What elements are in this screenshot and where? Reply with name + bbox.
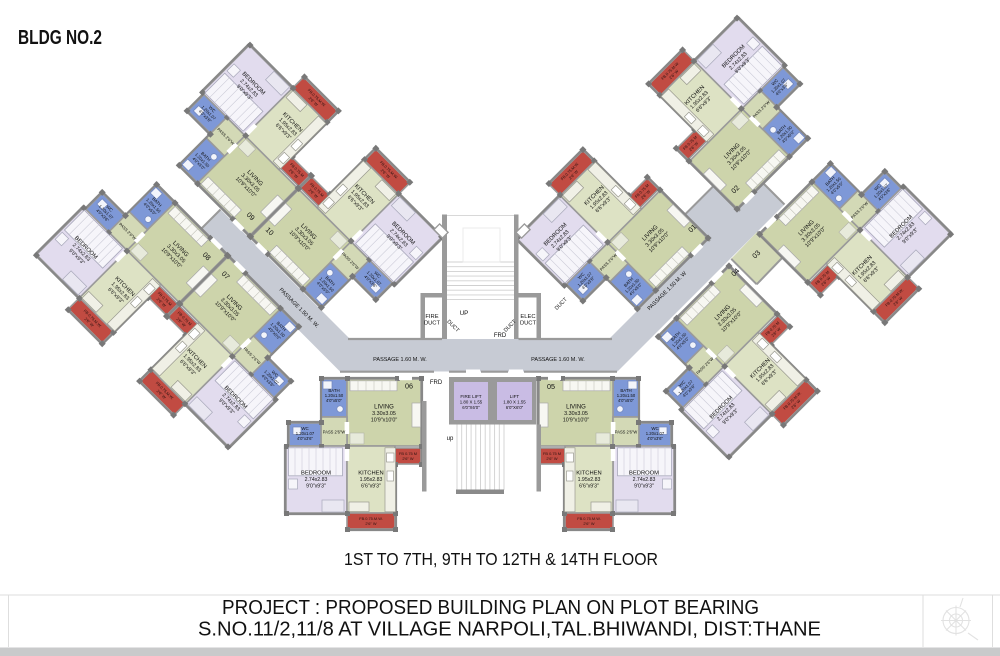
svg-text:FRD: FRD	[494, 333, 507, 339]
svg-text:2.74x2.83: 2.74x2.83	[305, 477, 328, 483]
svg-text:PASS 2'6"W: PASS 2'6"W	[323, 430, 346, 435]
svg-text:3.30x3.05: 3.30x3.05	[564, 411, 588, 417]
svg-text:FIRE: FIRE	[425, 314, 438, 320]
svg-text:9'0"x9'3": 9'0"x9'3"	[306, 483, 326, 489]
svg-text:4'0"x3'6": 4'0"x3'6"	[647, 436, 663, 441]
svg-text:10'9"x10'0": 10'9"x10'0"	[563, 417, 590, 423]
svg-text:1.95x2.83: 1.95x2.83	[578, 477, 601, 483]
svg-text:KITCHEN: KITCHEN	[358, 471, 383, 477]
svg-text:06: 06	[405, 382, 413, 391]
svg-text:PROJECT : PROPOSED BUILDING PL: PROJECT : PROPOSED BUILDING PLAN ON PLOT…	[222, 596, 759, 619]
svg-text:9'0"x9'3": 9'0"x9'3"	[634, 483, 654, 489]
svg-text:DUCT: DUCT	[520, 321, 537, 327]
svg-text:6'0"X6'0": 6'0"X6'0"	[462, 405, 480, 410]
svg-text:6'6"x9'3": 6'6"x9'3"	[579, 483, 599, 489]
svg-text:LIFT: LIFT	[510, 394, 520, 399]
svg-text:BEDROOM: BEDROOM	[629, 471, 659, 477]
svg-text:1ST TO 7TH, 9TH TO 12TH & 14TH: 1ST TO 7TH, 9TH TO 12TH & 14TH FLOOR	[344, 549, 658, 569]
svg-text:PASS 2'6"W: PASS 2'6"W	[615, 430, 638, 435]
svg-text:LIVING: LIVING	[566, 405, 586, 411]
svg-text:2'6" W: 2'6" W	[365, 521, 377, 526]
svg-text:2.74x2.83: 2.74x2.83	[633, 477, 656, 483]
svg-text:PASSAGE 1.60 M. W.: PASSAGE 1.60 M. W.	[531, 357, 585, 363]
svg-text:4'0"x5'0": 4'0"x5'0"	[618, 398, 634, 403]
svg-text:1.80 X 1.55: 1.80 X 1.55	[460, 400, 483, 405]
svg-text:10'9"x10'0": 10'9"x10'0"	[371, 417, 398, 423]
svg-text:4'0"x3'6": 4'0"x3'6"	[297, 436, 313, 441]
svg-text:DUCT: DUCT	[424, 321, 441, 327]
svg-text:KITCHEN: KITCHEN	[576, 471, 601, 477]
svg-text:FRD: FRD	[430, 380, 443, 386]
svg-text:PASSAGE 1.60 M. W.: PASSAGE 1.60 M. W.	[373, 357, 427, 363]
svg-text:6'6"x9'3": 6'6"x9'3"	[361, 483, 381, 489]
svg-text:UP: UP	[460, 310, 469, 317]
svg-text:6'0"X6'0": 6'0"X6'0"	[506, 405, 524, 410]
svg-text:BEDROOM: BEDROOM	[301, 471, 331, 477]
svg-text:S.NO.11/2,11/8 AT VILLAGE NARP: S.NO.11/2,11/8 AT VILLAGE NARPOLI,TAL.BH…	[198, 618, 821, 641]
svg-text:2'6" W: 2'6" W	[402, 456, 414, 461]
svg-text:2'6" W: 2'6" W	[583, 521, 595, 526]
svg-text:2'6" W: 2'6" W	[546, 456, 558, 461]
svg-text:05: 05	[547, 382, 555, 391]
svg-text:3.30x3.05: 3.30x3.05	[372, 411, 396, 417]
svg-text:LIVING: LIVING	[374, 405, 394, 411]
svg-text:1.95x2.83: 1.95x2.83	[360, 477, 383, 483]
svg-text:BLDG NO.2: BLDG NO.2	[18, 26, 102, 49]
svg-text:ELEC: ELEC	[520, 314, 535, 320]
svg-text:FIRE LIFT: FIRE LIFT	[460, 394, 481, 399]
svg-text:4'0"x5'0": 4'0"x5'0"	[326, 398, 342, 403]
svg-text:1.80 X 1.55: 1.80 X 1.55	[503, 400, 526, 405]
svg-text:up: up	[447, 436, 454, 442]
